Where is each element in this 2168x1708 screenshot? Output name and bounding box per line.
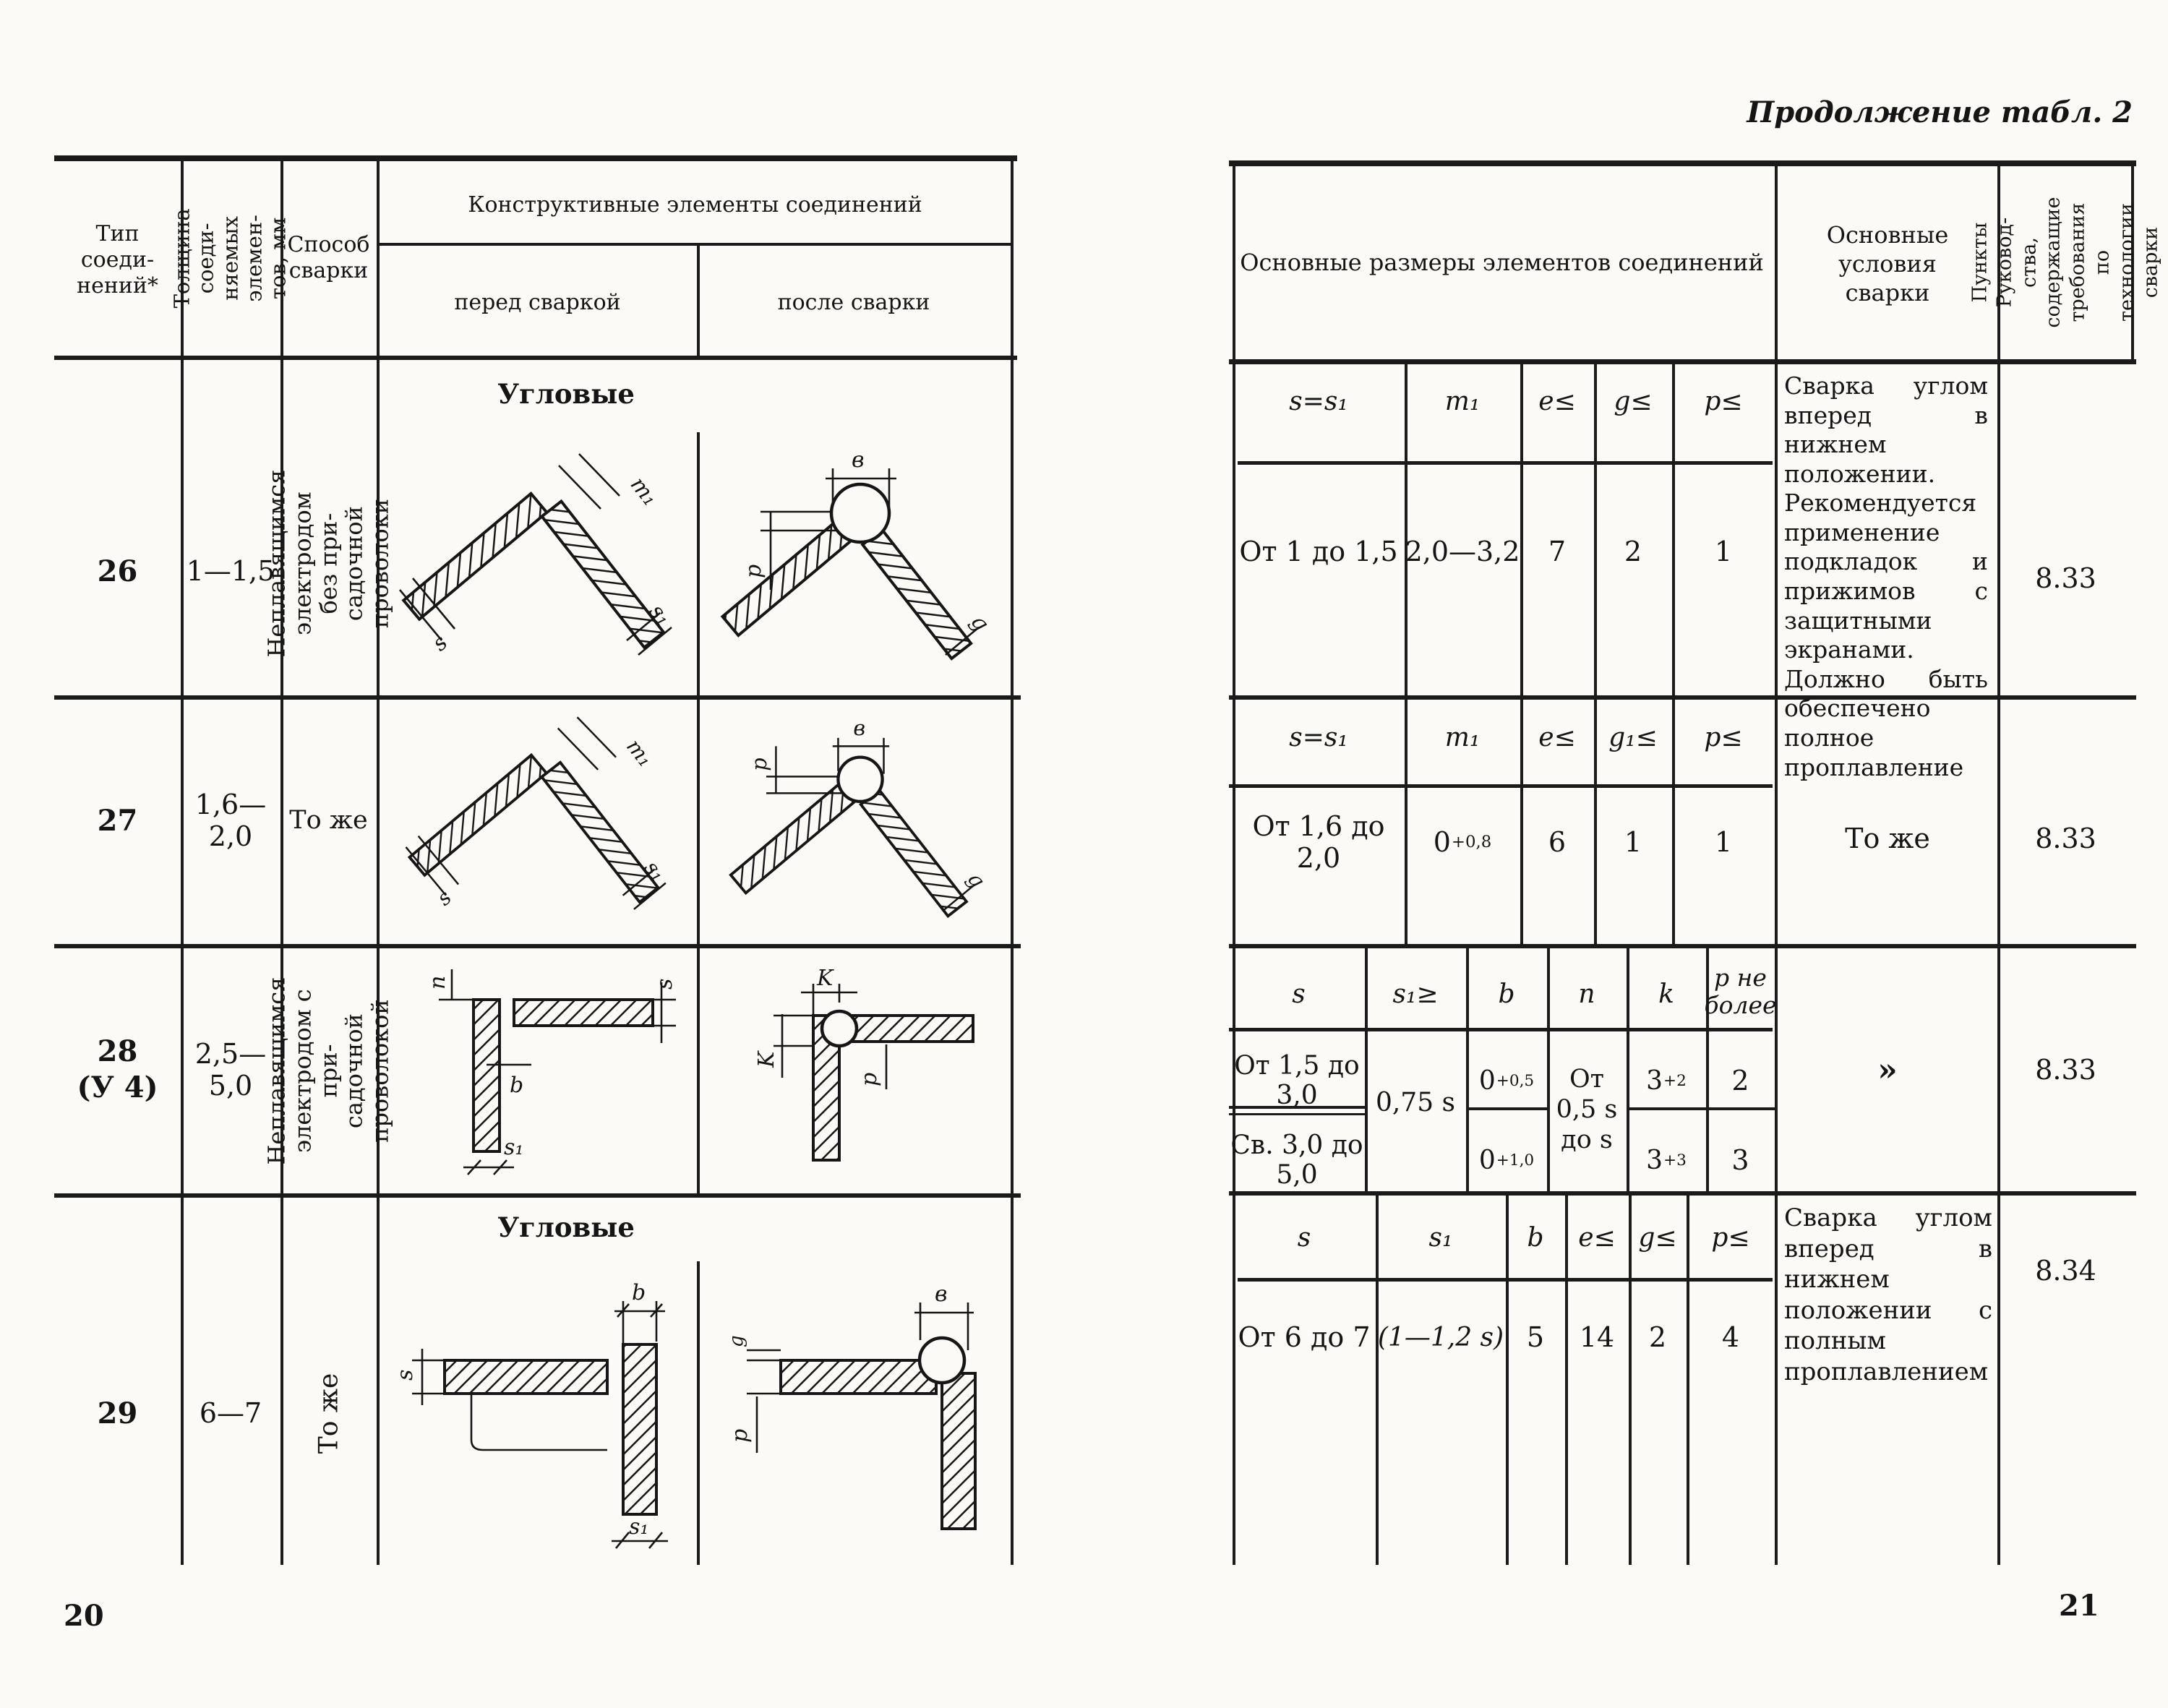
b1-header-m1: m₁ [1405, 376, 1520, 426]
b3-row2-p: 3 [1706, 1135, 1775, 1185]
b3-header-p-ne-bolee: p не более [1706, 956, 1775, 1028]
b4-value-b: 5 [1506, 1308, 1565, 1366]
diagram-row29-before: b s s₁ [390, 1272, 701, 1561]
diagram-row29-after: в g p [712, 1272, 1023, 1561]
dim-label-k-left: K [754, 1050, 779, 1068]
column-header-before-welding: перед сваркой [378, 273, 697, 331]
grid-line [181, 160, 184, 1565]
b3-row2-k: 3+3 [1627, 1135, 1706, 1185]
dim-label-e: в [852, 447, 864, 473]
b3-row2-k-sup: +3 [1663, 1151, 1687, 1170]
joint-type-27: 27 [54, 799, 181, 842]
b3-row1-s: От 1,5 до 3,0 [1229, 1055, 1365, 1106]
b3-header-s1: s₁≥ [1365, 961, 1466, 1026]
b3-row2-k-base: 3 [1646, 1146, 1663, 1175]
b3-s1-value: 0,75 s [1365, 1077, 1466, 1128]
b3-header-s: s [1233, 961, 1365, 1026]
b1-header-e: e≤ [1520, 376, 1594, 426]
column-header-thickness: Толщина соеди- няемых элемен- тов, мм [181, 160, 280, 356]
b4-header-p: p≤ [1687, 1209, 1775, 1266]
dim-label-m1: m₁ [625, 472, 664, 510]
b4-guide-point: 8.34 [2000, 1249, 2131, 1292]
thickness-29: 6—7 [181, 1391, 280, 1435]
diagram-row28-after: K K p [716, 958, 998, 1182]
joint-type-29: 29 [54, 1391, 181, 1435]
grid-line [1229, 784, 1773, 788]
grid-line [1229, 1113, 1365, 1115]
b3-row1-k: 3+2 [1627, 1055, 1706, 1106]
grid-line [1775, 166, 1778, 1565]
diagram-row26-before: m₁ s s₁ [394, 441, 683, 687]
b4-header-e: e≤ [1565, 1209, 1629, 1266]
b4-value-g: 2 [1629, 1308, 1687, 1366]
dim-label-s: s [652, 979, 677, 990]
grid-line [54, 944, 1021, 948]
b4-value-s: От 6 до 7 [1233, 1308, 1376, 1366]
b1-header-p: p≤ [1672, 376, 1775, 426]
b4-header-s1: s₁ [1376, 1209, 1506, 1266]
b2-header-s: s=s₁ [1233, 712, 1405, 763]
b1-conditions: Сварка углом вперед в нижнем положении. … [1784, 372, 1988, 782]
table-continuation-caption: Продолжение табл. 2 [1663, 95, 2133, 135]
grid-line [1466, 1107, 1547, 1110]
b3-row1-b-base: 0 [1479, 1066, 1496, 1096]
b3-row2-b-base: 0 [1479, 1146, 1496, 1175]
method-28: Неплавящимся электродом с при- садочной … [280, 948, 377, 1193]
grid-line [1238, 461, 1773, 465]
method-27: То же [280, 795, 377, 846]
dim-label-s1: s₁ [504, 1135, 523, 1160]
method-26-label: Неплавящимся электродом без при- садочно… [264, 470, 393, 658]
dim-label-p: p [747, 758, 771, 771]
column-header-after-welding: после сварки [697, 273, 1011, 331]
b3-row1-b-sup: +0,5 [1496, 1072, 1534, 1090]
dim-label-e: в [853, 716, 865, 740]
page-number-right: 21 [2059, 1589, 2099, 1623]
b1-value-s: От 1 до 1,5 [1233, 526, 1405, 577]
b2-value-g1: 1 [1594, 813, 1672, 871]
b2-value-s: От 1,6 до 2,0 [1233, 813, 1405, 871]
b2-header-g1: g₁≤ [1594, 712, 1672, 763]
b3-row1-k-sup: +2 [1663, 1072, 1687, 1090]
grid-line [1627, 1107, 1706, 1110]
grid-line [1229, 1028, 1773, 1031]
b4-header-g: g≤ [1629, 1209, 1687, 1266]
b2-header-p: p≤ [1672, 712, 1775, 763]
b2-conditions: То же [1778, 813, 1997, 864]
b4-value-s1: (1—1,2 s) [1376, 1308, 1506, 1366]
dim-label-b: b [510, 1073, 523, 1098]
grid-line [54, 1193, 1021, 1198]
grid-line [697, 432, 700, 695]
dim-label-s: s [428, 630, 453, 656]
column-header-type: Тип соеди- нений* [54, 202, 181, 318]
method-29-label: То же [314, 1373, 343, 1454]
b2-header-m1: m₁ [1405, 712, 1520, 763]
joint-type-26: 26 [54, 549, 181, 593]
grid-line [1706, 1107, 1775, 1110]
b4-value-p: 4 [1687, 1308, 1775, 1366]
method-26: Неплавящимся электродом без при- садочно… [280, 432, 377, 695]
b1-value-p: 1 [1672, 526, 1775, 577]
b2-value-p: 1 [1672, 813, 1775, 871]
b1-value-m1: 2,0—3,2 [1405, 526, 1520, 577]
grid-line [697, 700, 700, 944]
dim-label-b: b [632, 1280, 646, 1305]
dim-label-s1: s₁ [629, 1514, 648, 1540]
b3-row1-b: 0+0,5 [1466, 1055, 1547, 1106]
grid-line [378, 243, 1012, 246]
column-header-conditions: Основные условия сварки [1778, 217, 1997, 311]
method-28-label: Неплавящимся электродом с при- садочной … [264, 977, 393, 1165]
column-header-thickness-label: Толщина соеди- няемых элемен- тов, мм [171, 208, 291, 308]
column-header-guide-points-label: Пункты Руковод- ства, содержащие требова… [1968, 197, 2164, 327]
b1-guide-point: 8.33 [2000, 557, 2131, 600]
b3-row2-b: 0+1,0 [1466, 1135, 1547, 1185]
column-header-elements: Конструктивные элементы соединений [378, 179, 1012, 230]
dim-label-s: s [432, 885, 456, 911]
b2-value-m1: 0+0,8 [1405, 813, 1520, 871]
b3-row2-b-sup: +1,0 [1496, 1151, 1534, 1170]
dim-label-g: g [726, 1335, 747, 1347]
section-title-corner-joints-1: Угловые [378, 365, 754, 423]
dim-label-m1: m₁ [622, 734, 659, 771]
b1-header-s: s=s₁ [1233, 376, 1405, 426]
grid-line [1997, 166, 2000, 1565]
section-title-corner-joints-2: Угловые [378, 1198, 754, 1256]
b4-value-e: 14 [1565, 1308, 1629, 1366]
method-29: То же [280, 1261, 377, 1565]
b1-header-g: g≤ [1594, 376, 1672, 426]
b2-value-m1-sup: +0,8 [1452, 833, 1491, 851]
b3-header-n: n [1547, 961, 1627, 1026]
b2-header-e: e≤ [1520, 712, 1594, 763]
column-header-guide-points: Пункты Руковод- ства, содержащие требова… [2000, 165, 2131, 360]
column-header-method: Способ сварки [280, 160, 377, 356]
page-number-left: 20 [64, 1599, 104, 1633]
b3-header-k: k [1627, 961, 1706, 1026]
b1-value-e: 7 [1520, 526, 1594, 577]
column-header-dimensions: Основные размеры элементов соединений [1233, 237, 1771, 288]
b3-guide-point: 8.33 [2000, 1044, 2131, 1095]
diagram-row26-after: в p g [716, 441, 1005, 687]
b3-row1-p: 2 [1706, 1055, 1775, 1106]
b2-value-e: 6 [1520, 813, 1594, 871]
b2-guide-point: 8.33 [2000, 813, 2131, 864]
dim-label-p: p [741, 565, 766, 578]
dim-label-k-top: K [816, 966, 834, 991]
dim-label-e: в [935, 1282, 947, 1307]
thickness-27: 1,6—2,0 [181, 799, 280, 842]
dim-label-g: g [966, 609, 994, 636]
b3-conditions-ditto: » [1778, 1044, 1997, 1095]
dim-label-p: p [857, 1073, 882, 1086]
diagram-row27-after: в p g [716, 705, 1005, 940]
grid-line [54, 356, 1017, 360]
b3-n-value: От 0,5 s до s [1547, 1048, 1627, 1171]
grid-line [697, 948, 700, 1193]
grid-line [54, 695, 1021, 700]
dim-label-s: s [393, 1370, 418, 1381]
b3-header-b: b [1466, 961, 1547, 1026]
joint-type-28: 28 (У 4) [54, 1026, 181, 1113]
b3-row2-s: Св. 3,0 до 5,0 [1229, 1135, 1365, 1185]
b4-header-s: s [1233, 1209, 1376, 1266]
dim-label-p: p [727, 1429, 753, 1443]
b4-conditions: Сварка углом вперед в нижнем положении с… [1784, 1203, 1992, 1387]
diagram-row27-before: m₁ s s₁ [394, 705, 683, 940]
dim-label-n: n [425, 976, 450, 990]
b3-row1-k-base: 3 [1646, 1066, 1663, 1096]
b1-value-g: 2 [1594, 526, 1672, 577]
dim-label-g: g [963, 867, 990, 892]
grid-line [1238, 1278, 1773, 1282]
scanned-page-spread: Тип соеди- нений* Толщина соеди- няемых … [0, 0, 2168, 1708]
diagram-row28-before: n s b s₁ [401, 958, 683, 1182]
b2-value-m1-base: 0 [1434, 826, 1451, 858]
b4-header-b: b [1506, 1209, 1565, 1266]
